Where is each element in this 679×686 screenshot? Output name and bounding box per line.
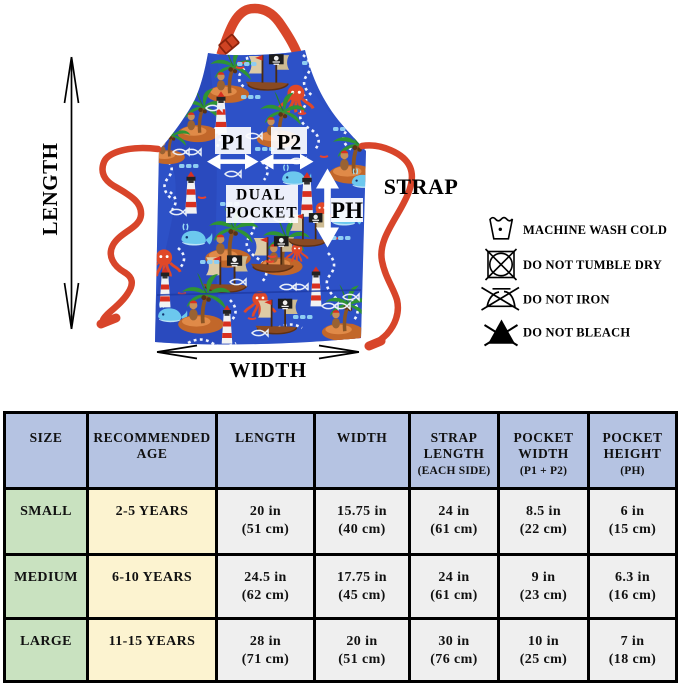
svg-text:DUAL: DUAL — [236, 187, 286, 204]
svg-text:P2: P2 — [277, 130, 301, 155]
svg-text:DO NOT IRON: DO NOT IRON — [523, 293, 610, 307]
svg-text:DO NOT TUMBLE DRY: DO NOT TUMBLE DRY — [523, 258, 662, 272]
svg-text:POCKET: POCKET — [226, 205, 297, 222]
svg-text:MACHINE WASH COLD: MACHINE WASH COLD — [523, 223, 667, 237]
svg-text:WIDTH: WIDTH — [229, 358, 306, 382]
svg-text:DO NOT BLEACH: DO NOT BLEACH — [523, 326, 630, 340]
svg-text:STRAP: STRAP — [384, 174, 459, 199]
svg-text:P1: P1 — [221, 130, 245, 155]
svg-text:LENGTH: LENGTH — [38, 143, 62, 236]
svg-text:PH: PH — [331, 198, 363, 223]
